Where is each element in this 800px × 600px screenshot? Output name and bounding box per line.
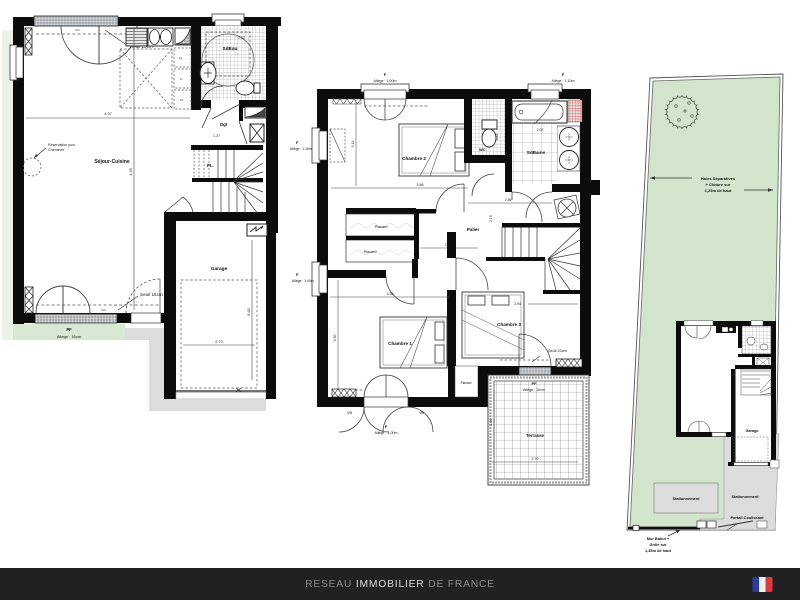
svg-text:SdBains: SdBains	[527, 150, 546, 155]
svg-text:2.50: 2.50	[489, 419, 493, 426]
svg-text:4.45: 4.45	[129, 168, 133, 175]
svg-text:1.37: 1.37	[213, 134, 220, 138]
svg-text:Allège : 1,40m: Allège : 1,40m	[292, 279, 314, 283]
svg-text:Fr: Fr	[180, 77, 183, 81]
svg-text:VB: VB	[419, 411, 425, 415]
svg-text:WC: WC	[479, 147, 486, 152]
svg-text:Stationnement: Stationnement	[731, 494, 759, 499]
svg-text:2.70: 2.70	[215, 340, 222, 344]
svg-text:Allège : 1,10m: Allège : 1,10m	[552, 79, 575, 83]
svg-text:PL.: PL.	[207, 163, 214, 168]
svg-text:Palier: Palier	[467, 227, 480, 232]
svg-text:V.R.: V.R.	[75, 28, 81, 32]
svg-text:V.R.: V.R.	[101, 308, 107, 312]
svg-text:Chambre 3: Chambre 3	[497, 322, 521, 327]
svg-text:Allège : 1,00m: Allège : 1,00m	[374, 79, 397, 83]
svg-text:VB: VB	[347, 411, 353, 415]
svg-text:3.50: 3.50	[333, 335, 337, 342]
svg-text:PF: PF	[531, 381, 537, 386]
svg-text:3.14: 3.14	[351, 141, 355, 148]
svg-text:Réservation pour: Réservation pour	[48, 143, 76, 147]
svg-text:Chambre 2: Chambre 2	[402, 156, 426, 161]
svg-text:2.02: 2.02	[238, 36, 245, 40]
svg-text:4.97: 4.97	[104, 112, 111, 116]
svg-text:PF: PF	[66, 327, 72, 332]
svg-text:3.94: 3.94	[514, 302, 521, 306]
svg-text:+ Clôture sur: + Clôture sur	[706, 182, 731, 187]
svg-text:Stationnement: Stationnement	[672, 496, 700, 501]
svg-text:Placard: Placard	[461, 381, 472, 385]
svg-text:3.36: 3.36	[387, 292, 394, 296]
svg-text:Garage: Garage	[745, 429, 758, 433]
svg-text:SdEau: SdEau	[223, 46, 238, 52]
svg-text:Portail Coulissant: Portail Coulissant	[730, 515, 764, 520]
svg-text:Grille sur: Grille sur	[649, 542, 667, 547]
svg-text:Seuil 20cm: Seuil 20cm	[548, 349, 567, 353]
svg-text:6.60: 6.60	[247, 308, 251, 315]
svg-text:Placard: Placard	[364, 250, 377, 254]
svg-text:Placard: Placard	[375, 225, 388, 229]
svg-text:Haies Séparatives: Haies Séparatives	[701, 176, 736, 181]
svg-text:Seuil 15cm: Seuil 15cm	[140, 292, 163, 297]
svg-text:Fg: Fg	[179, 56, 183, 60]
svg-text:Terrasse: Terrasse	[526, 433, 545, 438]
svg-text:Mur Bahut +: Mur Bahut +	[647, 536, 670, 541]
svg-text:1.61: 1.61	[495, 134, 499, 140]
svg-text:1,35m de haut: 1,35m de haut	[645, 548, 672, 553]
svg-text:PL: PL	[180, 98, 184, 102]
svg-text:Cheminée: Cheminée	[48, 148, 64, 152]
svg-text:3.88: 3.88	[417, 183, 424, 187]
svg-text:2.36: 2.36	[505, 198, 512, 202]
svg-text:2.70: 2.70	[532, 457, 539, 461]
svg-text:Allège : 16cm: Allège : 16cm	[57, 334, 82, 339]
svg-text:Allège : 1,10m: Allège : 1,10m	[290, 147, 312, 151]
svg-text:2.02: 2.02	[537, 128, 544, 132]
svg-text:Séjour-Cuisine: Séjour-Cuisine	[94, 159, 130, 165]
svg-text:RESEAU IMMOBILIER DE FRANCE: RESEAU IMMOBILIER DE FRANCE	[305, 579, 495, 590]
svg-text:Allège : 1,00m: Allège : 1,00m	[375, 431, 398, 435]
svg-text:Garage: Garage	[211, 266, 228, 272]
svg-text:Chambre 1: Chambre 1	[388, 341, 412, 346]
svg-text:1,25m de haut: 1,25m de haut	[705, 188, 732, 193]
svg-text:2.19: 2.19	[489, 215, 493, 222]
svg-text:Dgt: Dgt	[220, 122, 228, 127]
svg-text:Allège : 10cm: Allège : 10cm	[523, 388, 545, 392]
